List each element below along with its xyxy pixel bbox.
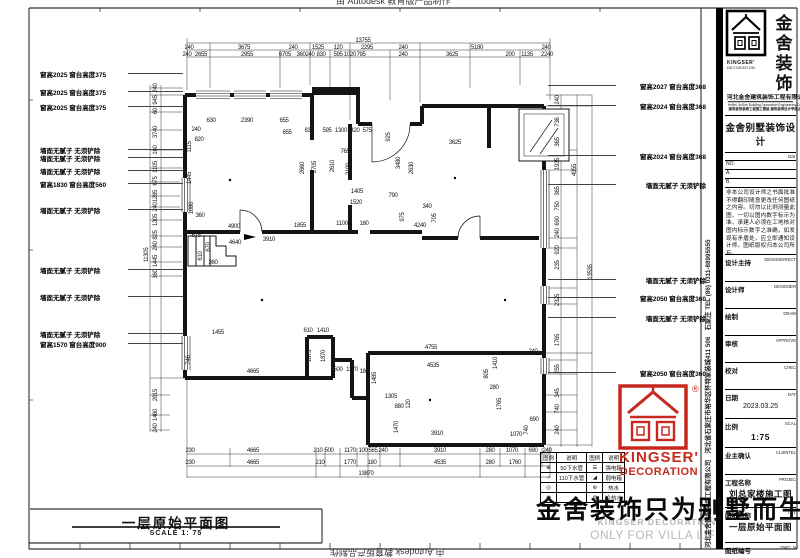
annotation-right: 墙面无腻子 无须铲除 (618, 313, 706, 323)
field-label-cn: 图纸编号 (725, 545, 751, 555)
annotation-left: 墙面无腻子 无须铲除 (40, 166, 100, 176)
field-value: 2023.03.25 (725, 403, 796, 410)
company-address-strip: 河北金舍建筑装饰工程有限公司 河北省石家庄市裕华区怀特家装城411 506 石家… (703, 8, 716, 548)
titleblock-field-row: 业主确认CLIENTEL (725, 448, 796, 475)
annotation-leader-line (548, 105, 616, 106)
logo-cn: 金舍 装饰 (769, 14, 799, 94)
titleblock-field-row: 设计主持DESIGNDIRECT (725, 255, 796, 282)
annotation-right: 窗高2024 窗台高度368 (618, 101, 706, 111)
registered-mark: ® (692, 384, 699, 394)
b-label: B. (725, 179, 796, 188)
annotation-left: 墙面无腻子 无须铲除 (40, 265, 100, 275)
field-label-en: APPROVE (776, 338, 796, 343)
brand-line: 金舍别墅装饰设计 (725, 115, 796, 153)
divider-bar (716, 8, 723, 549)
annotation-left: 窗高2025 窗台高度375 (40, 102, 106, 112)
annotation-right: 窗高2050 窗台高度360 (618, 368, 706, 378)
legend-header: 说明 (557, 453, 587, 463)
annotation-right: 窗高2024 窗台高度368 (618, 151, 706, 161)
disclaimer-note: 非本公司设计师之书面批准 不得翻印随意更改任何图纸之内容。切勿以比例测量此图，一… (725, 188, 796, 255)
company-name-en: HeBei JinShe Building Decoration Enginee… (728, 101, 793, 107)
titleblock-field-row: 图纸编号DWG. NZS-01 (725, 543, 796, 558)
plan-title: 一层原始平面图 (70, 512, 282, 532)
titleblock-logo: 金舍 装饰 KINGSER' DECORATION (725, 8, 796, 92)
field-label-en: CLIENTEL (776, 450, 796, 455)
annotation-left: 窗高2025 窗台高度375 (40, 87, 106, 97)
plan-scale: SCALE 1: 75 (70, 530, 282, 537)
annotation-leader-line (128, 209, 183, 210)
slogan-watermark: 金舍装饰只为别墅而生。 (536, 490, 800, 526)
field-label-en: DESIGNDIRECT (764, 257, 796, 262)
annotation-leader-line (128, 269, 183, 270)
annotation-leader-line (548, 317, 616, 318)
titleblock-field-row: 设计师DESIGNER (725, 282, 796, 309)
annotation-leader-line (548, 279, 616, 280)
annotation-left: 墙面无腻子 无须铲除 (40, 205, 100, 215)
annotation-left: 窗高2025 窗台高度375 (40, 69, 106, 79)
annotation-right: 墙面无腻子 无须铲除 (618, 275, 706, 285)
company-qualification: 建筑装饰装修工程施工壹级 建筑装饰设计甲级企业 (729, 107, 793, 112)
field-label-cn: 校对 (725, 365, 738, 375)
annotation-right: 窗高2027 窗台高度368 (618, 81, 706, 91)
legend-description: 50下水管 (557, 463, 587, 473)
annotation-leader-line (128, 149, 183, 150)
legend-symbol: ○ (541, 473, 557, 483)
annotation-left: 墙面无腻子 无须铲除 (40, 153, 100, 163)
field-label-en: DAT (788, 392, 796, 397)
annotation-leader-line (128, 91, 183, 92)
dat-label: Dat (725, 153, 796, 161)
no-label: NO. (725, 161, 796, 170)
autodesk-watermark-top: 由 Autodesk 教育版产品制作 (336, 0, 451, 7)
field-label-cn: 审核 (725, 338, 738, 348)
field-label-cn: 绘制 (725, 311, 738, 321)
field-label-cn: 日期 (725, 392, 738, 402)
stamp-brand-line1: KINGSER' (600, 449, 718, 466)
title-block: 金舍 装饰 KINGSER' DECORATION 河北金舍建筑装饰工程有限公司… (725, 8, 796, 549)
titleblock-field-row: 校对CHEC (725, 363, 796, 390)
annotation-leader-line (128, 333, 183, 334)
field-value: 1:75 (725, 432, 796, 442)
titleblock-field-row: 日期DAT2023.03.25 (725, 390, 796, 419)
field-label-cn: 比例 (725, 421, 738, 431)
legend-symbol: ⊕ (541, 463, 557, 473)
field-label-cn: 业主确认 (725, 450, 751, 460)
annotation-left: 窗高1830 窗台高度560 (40, 179, 106, 189)
annotation-leader-line (548, 372, 616, 373)
legend-description: 110下水管 (557, 473, 587, 483)
annotation-leader-line (128, 73, 183, 74)
annotation-right: 窗高2050 窗台高度360 (618, 293, 706, 303)
drawing-sheet: 1375524036752401525120229524051802402402… (0, 0, 800, 558)
annotation-leader-line (128, 343, 183, 344)
annotation-right: 墙面无腻子 无须铲除 (618, 180, 706, 190)
field-label-en: DWG. N (780, 545, 796, 550)
annotation-left: 墙面无腻子 无须铲除 (40, 329, 100, 339)
field-label-cn: 设计师 (725, 284, 745, 294)
autodesk-watermark-bottom: 由 Autodesk 教育版产品制作 (330, 546, 445, 558)
annotation-leader-line (548, 85, 616, 86)
annotation-leader-line (128, 157, 183, 158)
annotation-leader-line (128, 170, 183, 171)
field-label-en: CHEC (784, 365, 796, 370)
annotation-left: 窗高1570 窗台高度900 (40, 339, 106, 349)
field-label-cn: 设计主持 (725, 257, 751, 267)
annotation-leader-line (128, 106, 183, 107)
annotation-leader-line (128, 183, 183, 184)
field-label-en: DRAW (783, 311, 796, 316)
annotation-left: 墙面无腻子 无须铲除 (40, 292, 100, 302)
titleblock-field-row: 绘制DRAW (725, 309, 796, 336)
company-name: 河北金舍建筑装饰工程有限公司 (727, 92, 794, 101)
titleblock-field-row: 比例SCAL1:75 (725, 419, 796, 448)
titleblock-field-row: 审核APPROVE (725, 336, 796, 363)
stamp-brand-line2: DECORATION (600, 466, 718, 478)
field-label-cn: 工程名称 (725, 477, 751, 487)
a-label: A. (725, 170, 796, 179)
annotation-leader-line (548, 184, 616, 185)
logo-en2: DECORATION (727, 66, 755, 70)
field-label-en: SCAL (785, 421, 796, 426)
annotation-leader-line (128, 296, 183, 297)
annotation-leader-line (548, 297, 616, 298)
field-label-en: PROJEC (779, 477, 796, 482)
legend-header: 图例 (541, 453, 557, 463)
annotation-leader-line (548, 155, 616, 156)
field-label-en: DESIGNER (774, 284, 796, 289)
